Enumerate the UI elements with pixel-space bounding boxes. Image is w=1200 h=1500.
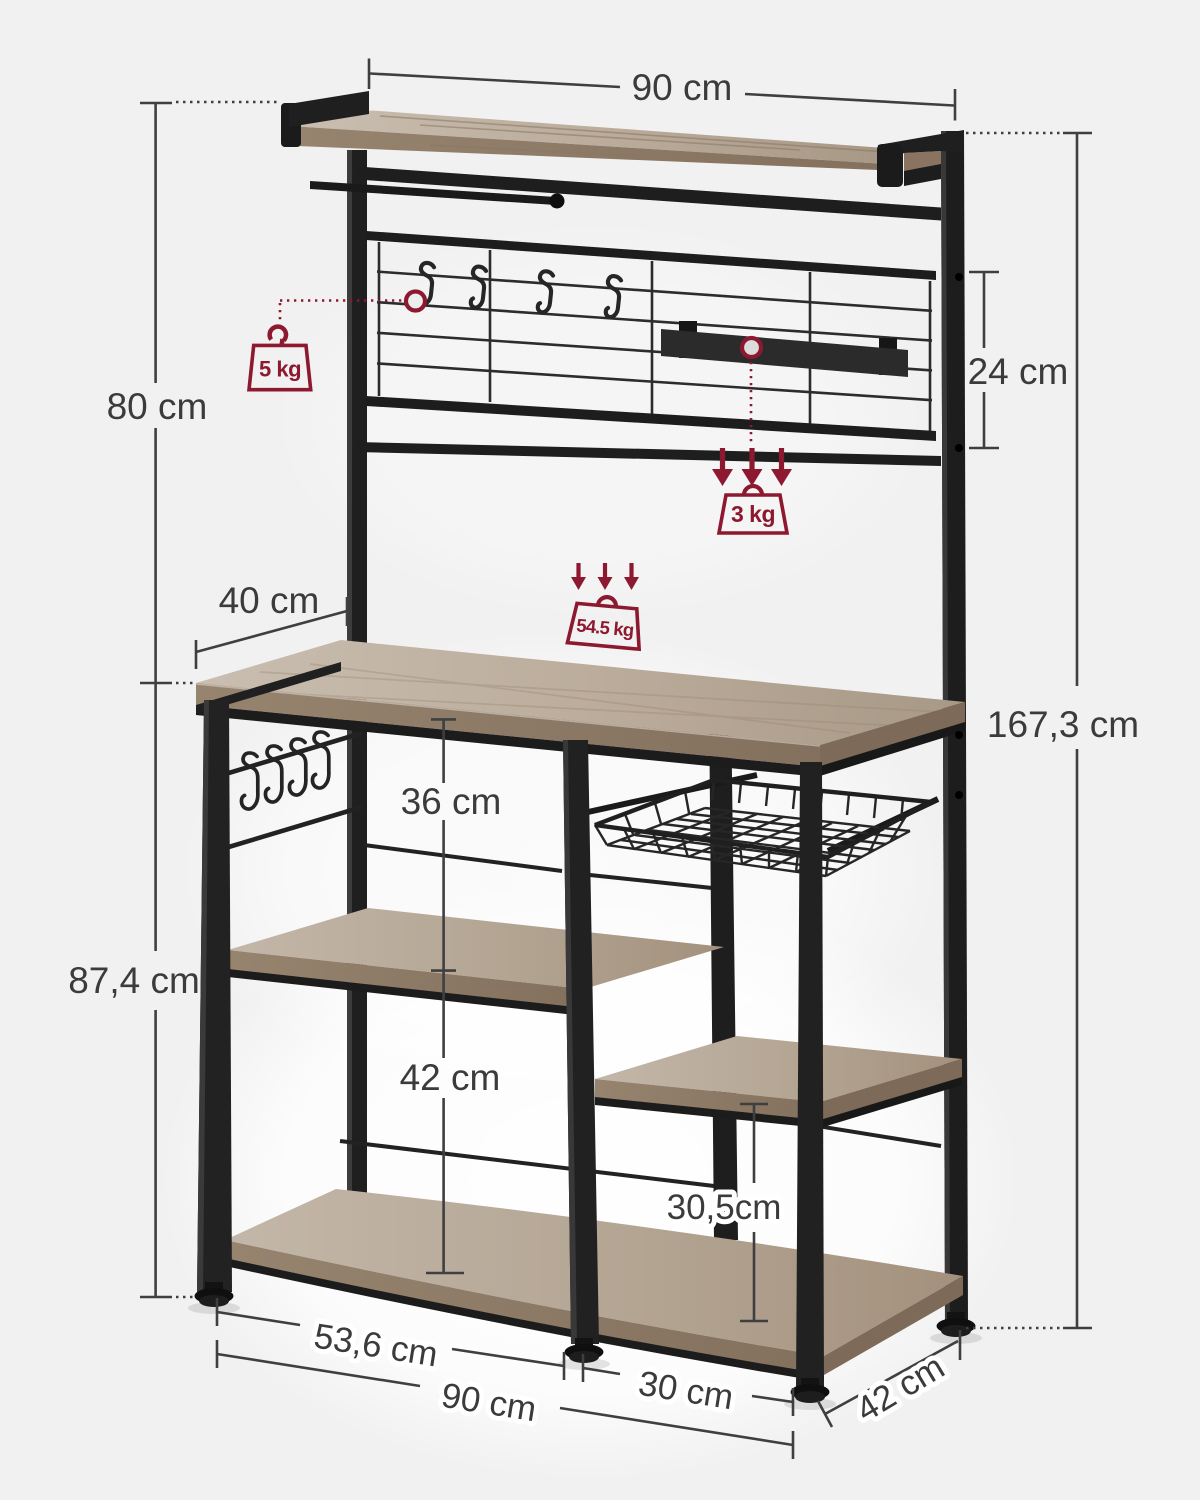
svg-text:30,5cm: 30,5cm xyxy=(667,1188,782,1227)
svg-text:42 cm: 42 cm xyxy=(400,1057,501,1098)
svg-text:24 cm: 24 cm xyxy=(968,351,1069,392)
svg-text:87,4 cm: 87,4 cm xyxy=(68,960,200,1001)
svg-text:36 cm: 36 cm xyxy=(401,781,502,822)
svg-text:167,3 cm: 167,3 cm xyxy=(987,704,1139,745)
svg-text:5 kg: 5 kg xyxy=(259,357,301,382)
svg-text:40 cm: 40 cm xyxy=(219,580,320,621)
svg-text:90 cm: 90 cm xyxy=(632,67,733,108)
svg-text:3 kg: 3 kg xyxy=(731,501,775,527)
svg-text:80 cm: 80 cm xyxy=(107,386,208,427)
